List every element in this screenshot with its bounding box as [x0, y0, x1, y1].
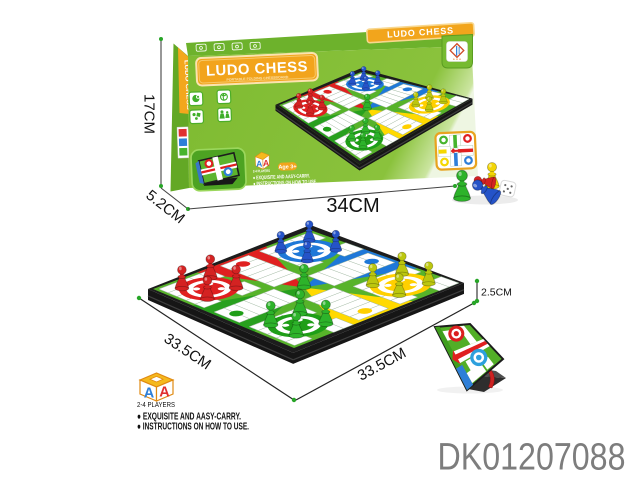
svg-text:A: A: [159, 385, 170, 401]
svg-text:DK01207088: DK01207088: [438, 437, 626, 479]
svg-text:A: A: [256, 159, 262, 169]
svg-text:A: A: [263, 158, 269, 168]
svg-text:★ ★ ★: ★ ★ ★: [453, 57, 462, 61]
svg-text:2.5CM: 2.5CM: [481, 287, 512, 299]
svg-text:2-4 PLAYERS: 2-4 PLAYERS: [137, 400, 175, 409]
svg-text:● INSTRUCTIONS ON HOW TO USE.: ● INSTRUCTIONS ON HOW TO USE.: [137, 422, 249, 433]
svg-text:34CM: 34CM: [326, 195, 379, 217]
svg-text:2-4 PLAYERS: 2-4 PLAYERS: [253, 169, 271, 174]
svg-text:Age 3+: Age 3+: [278, 164, 296, 171]
svg-text:17CM: 17CM: [141, 94, 158, 134]
